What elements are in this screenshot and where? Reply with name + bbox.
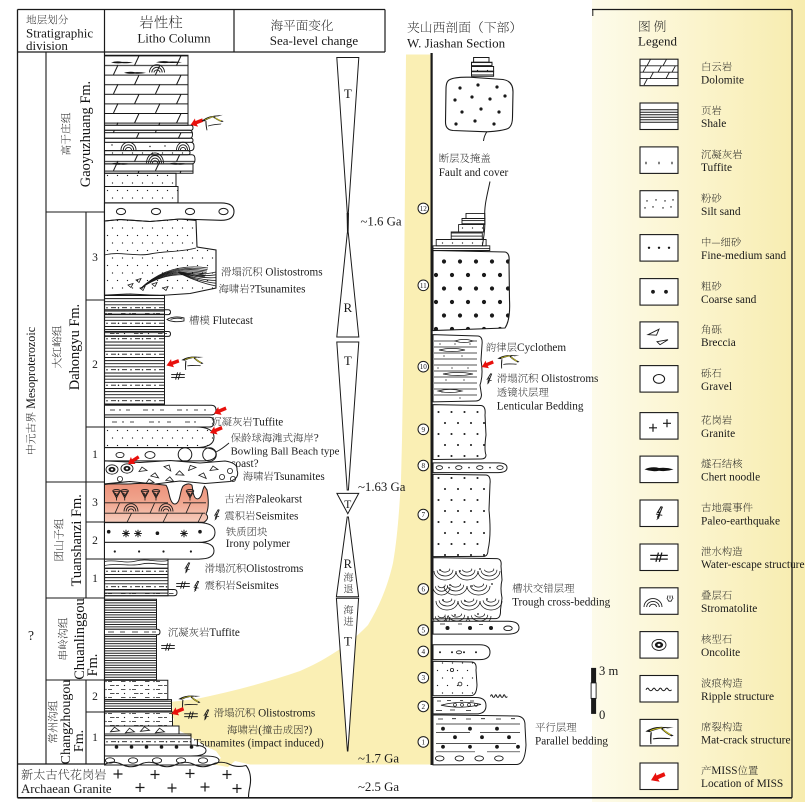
svg-text:Location of MISS: Location of MISS	[701, 778, 783, 790]
svg-text:Seismites: Seismites	[256, 511, 299, 523]
svg-text:Gaoyuzhuang Fm.: Gaoyuzhuang Fm.	[78, 81, 94, 187]
svg-text:Oncolite: Oncolite	[701, 647, 740, 659]
svg-text:T: T	[344, 353, 352, 368]
svg-text:Stromatolite: Stromatolite	[701, 603, 757, 615]
svg-text:Trough cross-bedding: Trough cross-bedding	[512, 597, 611, 609]
svg-text:?): ?)	[304, 725, 313, 737]
svg-text:Dahongyu Fm.: Dahongyu Fm.	[67, 304, 83, 390]
svg-text:(: (	[258, 725, 262, 737]
svg-text:R: R	[344, 557, 353, 571]
svg-text:8: 8	[422, 462, 426, 470]
svg-text:Breccia: Breccia	[701, 337, 736, 349]
svg-text:T: T	[344, 634, 352, 649]
svg-text:Mesoproterozoic: Mesoproterozoic	[24, 327, 38, 412]
svg-text:9: 9	[422, 426, 426, 434]
svg-text:Olistostroms: Olistostroms	[246, 563, 303, 575]
svg-text:3: 3	[92, 497, 98, 509]
svg-text:~2.5 Ga: ~2.5 Ga	[358, 780, 399, 794]
svg-text:Shale: Shale	[701, 118, 726, 130]
svg-text:6: 6	[422, 585, 426, 593]
svg-text:T: T	[344, 86, 352, 101]
svg-text:Archaean Granite: Archaean Granite	[21, 782, 112, 796]
svg-text:7: 7	[422, 511, 426, 519]
svg-text:Tuffite: Tuffite	[253, 417, 283, 429]
svg-text:2: 2	[92, 535, 98, 547]
svg-text:Sea-level change: Sea-level change	[270, 33, 359, 48]
svg-text:Litho Column: Litho Column	[137, 31, 211, 46]
svg-text:Chert noodle: Chert noodle	[701, 471, 760, 483]
svg-text:Fine-medium sand: Fine-medium sand	[701, 250, 786, 262]
svg-text:Tuffite: Tuffite	[209, 627, 239, 639]
svg-text:Water-escape structure: Water-escape structure	[701, 559, 805, 571]
svg-text:Cyclothem: Cyclothem	[517, 342, 566, 354]
svg-text:?: ?	[28, 628, 34, 643]
svg-text:Paleokarst: Paleokarst	[256, 494, 303, 506]
svg-text:T: T	[344, 499, 351, 511]
svg-text:1: 1	[422, 738, 426, 746]
svg-text:3 m: 3 m	[599, 664, 618, 678]
svg-text:R: R	[343, 300, 352, 315]
svg-text:11: 11	[420, 282, 427, 290]
svg-text:Tuffite: Tuffite	[701, 162, 732, 174]
svg-text:?Tsunamites: ?Tsunamites	[250, 284, 306, 296]
svg-text:Tuanshanzi Fm.: Tuanshanzi Fm.	[69, 494, 85, 586]
svg-text:Fm.: Fm.	[85, 654, 101, 677]
svg-text:?: ?	[314, 433, 319, 445]
svg-text:2: 2	[92, 359, 98, 371]
svg-text:~1.7 Ga: ~1.7 Ga	[358, 752, 399, 766]
svg-text:MISS: MISS	[711, 765, 737, 777]
svg-text:Legend: Legend	[638, 34, 677, 49]
svg-text:~1.63 Ga: ~1.63 Ga	[358, 480, 406, 494]
svg-text:Olistostroms: Olistostroms	[538, 373, 598, 385]
svg-text:2: 2	[422, 703, 426, 711]
svg-text:Paleo-earthquake: Paleo-earthquake	[701, 515, 780, 527]
svg-text:1: 1	[92, 732, 98, 744]
svg-text:Lenticular Bedding: Lenticular Bedding	[497, 401, 584, 413]
svg-text:Olistostroms: Olistostroms	[255, 708, 315, 720]
svg-text:3: 3	[422, 674, 426, 682]
svg-text:12: 12	[420, 205, 428, 213]
svg-text:~1.6 Ga: ~1.6 Ga	[361, 215, 402, 229]
svg-text:4: 4	[422, 648, 426, 656]
svg-text:Gravel: Gravel	[701, 381, 732, 393]
svg-text:Coarse sand: Coarse sand	[701, 294, 757, 306]
svg-text:Ripple structure: Ripple structure	[701, 691, 774, 703]
svg-text:0: 0	[599, 708, 605, 722]
svg-text:Fm.: Fm.	[72, 730, 87, 752]
svg-text:1: 1	[92, 573, 98, 585]
svg-text:Irony polymer: Irony polymer	[226, 538, 291, 550]
svg-text:W. Jiashan Section: W. Jiashan Section	[407, 36, 506, 51]
svg-text:1: 1	[92, 449, 98, 461]
svg-text:10: 10	[420, 363, 428, 371]
svg-text:Bowling Ball Beach type: Bowling Ball Beach type	[231, 446, 340, 458]
svg-text:Flutecast: Flutecast	[210, 315, 254, 327]
svg-text:5: 5	[422, 627, 426, 635]
svg-text:3: 3	[92, 252, 98, 264]
svg-text:Mat-crack structure: Mat-crack structure	[701, 735, 791, 747]
svg-text:Dolomite: Dolomite	[701, 74, 744, 86]
svg-text:division: division	[26, 38, 68, 53]
svg-text:Tsunamites: Tsunamites	[274, 471, 325, 483]
svg-text:Parallel bedding: Parallel bedding	[535, 736, 608, 748]
svg-text:Fault and cover: Fault and cover	[439, 167, 509, 179]
svg-text:Silt sand: Silt sand	[701, 206, 741, 218]
svg-text:Olistostroms: Olistostroms	[263, 267, 323, 279]
svg-text:Seismites: Seismites	[236, 580, 279, 592]
svg-text:Granite: Granite	[701, 428, 735, 440]
svg-text:2: 2	[92, 691, 98, 703]
svg-text:Tsunamites (impact induced): Tsunamites (impact induced)	[194, 738, 324, 750]
